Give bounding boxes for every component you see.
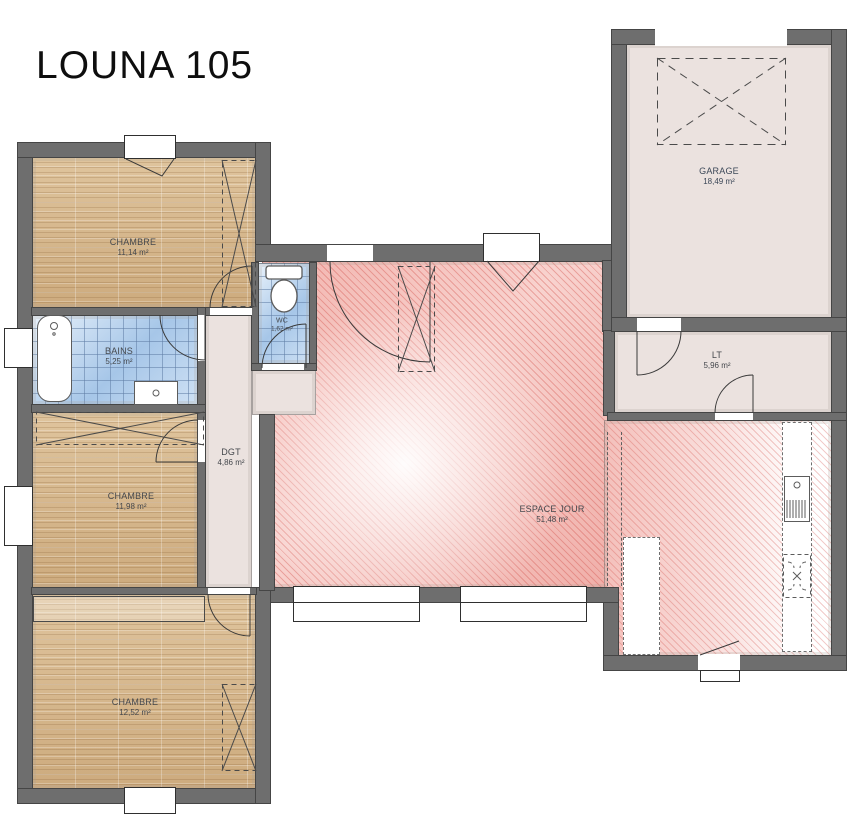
bathtub-icon: [37, 315, 72, 402]
bay-window-1-frame-line: [293, 602, 420, 603]
open-plan-boundary-dashed-line: [621, 432, 622, 586]
bay-window-2: [460, 586, 587, 622]
room-label-espace-jour: ESPACE JOUR 51,48 m²: [519, 504, 584, 524]
garage-lt-door-opening: [637, 318, 681, 331]
bains-door-opening: [198, 315, 205, 361]
room-label-lt: LT 5,96 m²: [703, 350, 730, 370]
wall-exterior-right-bottom: [256, 588, 270, 803]
room-label-chambre-2: CHAMBRE 11,98 m²: [108, 491, 154, 511]
wall-degagement-right: [260, 415, 274, 590]
wall-exterior-right-wing: [832, 30, 846, 670]
floor-lt: [614, 331, 832, 413]
window-living-top: [483, 233, 540, 262]
floor-plan: LOUNA 105: [0, 0, 863, 816]
bay-window-2-frame-line: [460, 602, 587, 603]
wall-exterior-left: [18, 143, 32, 803]
bay-window-1: [293, 586, 420, 622]
wall-wc-right: [310, 263, 316, 370]
floor-chambre-3: [32, 594, 256, 789]
room-label-dgt: DGT 4,86 m²: [217, 447, 244, 467]
room-label-chambre-3: CHAMBRE 12,52 m²: [112, 697, 158, 717]
room-label-wc: WC 1,62 m²: [271, 318, 293, 333]
garage-door-opening: [655, 28, 787, 46]
plan-title: LOUNA 105: [36, 44, 253, 88]
floor-passage: [252, 370, 316, 415]
wc-door-opening: [262, 364, 304, 370]
chambre1-door-opening: [210, 308, 252, 315]
window-chambre2: [4, 486, 33, 546]
window-bains: [4, 328, 33, 368]
wall-garage-left: [612, 30, 626, 318]
room-label-chambre-1: CHAMBRE 11,14 m²: [110, 237, 156, 257]
kitchen-door-step: [700, 670, 740, 682]
entry-door-opening: [327, 245, 373, 261]
open-plan-boundary-dashed-line: [607, 432, 608, 586]
wall-wc-left: [252, 263, 258, 370]
wall-lt-left: [604, 331, 614, 415]
wall-living-top: [256, 245, 618, 261]
chambre2-door-opening: [198, 420, 205, 462]
floor-wc: [258, 263, 310, 364]
window-chambre3: [124, 787, 176, 814]
wall-exterior-right-top: [256, 143, 270, 247]
kitchen-exterior-door-opening: [698, 654, 740, 670]
chambre3-door-opening: [208, 588, 250, 594]
kitchen-counter-right: [782, 422, 812, 652]
wall-bains-chambre2: [32, 405, 205, 412]
kitchen-counter-left: [623, 537, 660, 655]
lt-living-door-opening: [715, 413, 753, 420]
chambre3-storage: [33, 596, 205, 622]
window-chambre1: [124, 135, 176, 159]
room-label-bains: BAINS 5,25 m²: [105, 346, 133, 366]
room-label-garage: GARAGE 18,49 m²: [699, 166, 739, 186]
bathroom-sink-icon: [134, 381, 178, 405]
floor-chambre-1: [32, 157, 256, 308]
